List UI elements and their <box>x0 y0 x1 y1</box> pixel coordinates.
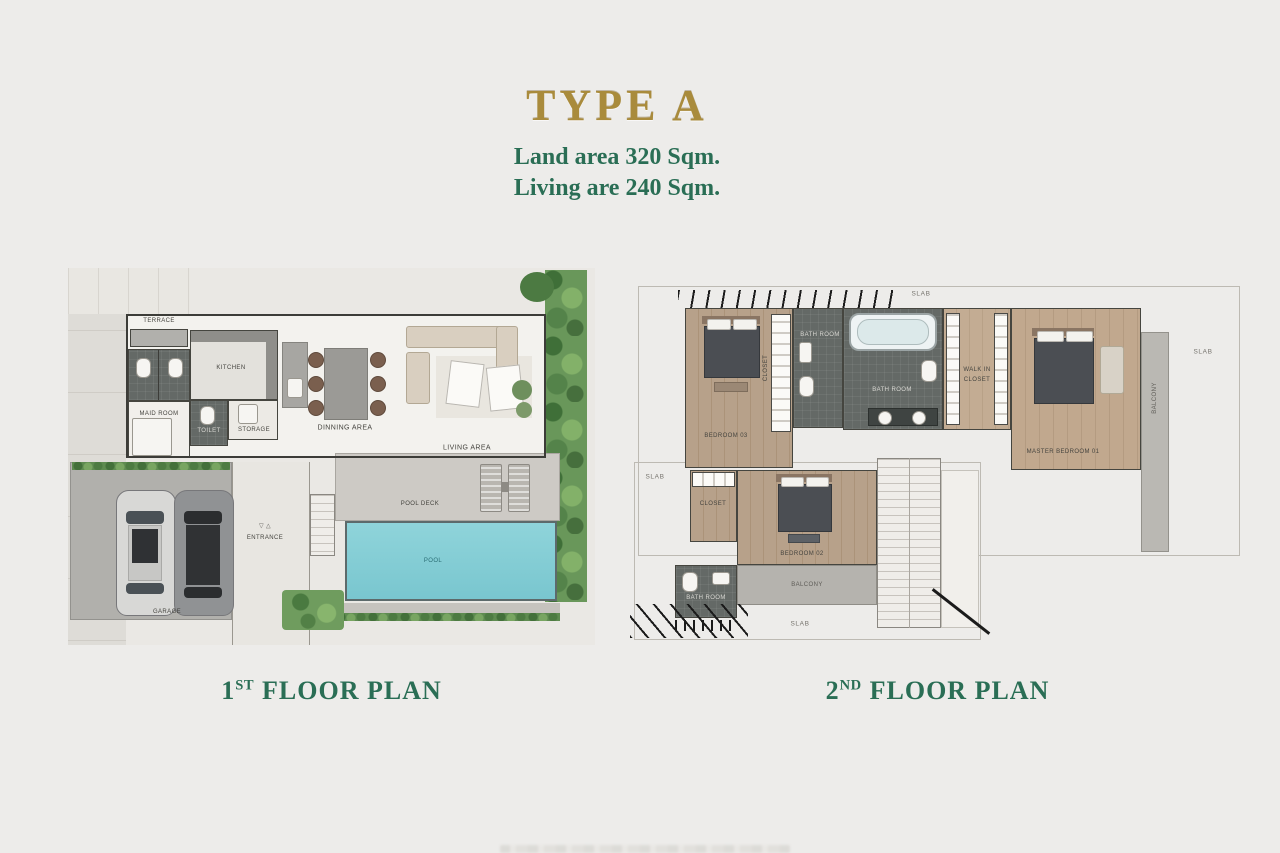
roof-hatch-marks <box>678 290 896 310</box>
dining-chair <box>370 400 386 416</box>
balcony-right <box>1141 332 1169 552</box>
garage-label: GARAGE <box>153 609 181 615</box>
floor1-caption-ordinal: ST <box>235 677 254 693</box>
bathtub-inner <box>857 319 929 345</box>
sofa <box>406 326 508 348</box>
plant <box>512 380 532 400</box>
floor1-caption-text: FLOOR PLAN <box>262 676 442 705</box>
entry-steps <box>310 494 335 556</box>
dining-area-label: DINNING AREA <box>318 425 373 432</box>
bath-divider-wall <box>158 350 159 400</box>
wall-right <box>544 314 546 458</box>
garden-patch <box>282 590 344 630</box>
pool-back-deck <box>335 603 560 613</box>
floor1-caption: 1STFLOOR PLAN <box>68 676 595 706</box>
pool-label: POOL <box>424 558 442 564</box>
car-sunroof <box>132 529 158 563</box>
bed-pillow <box>806 477 829 487</box>
floor2-caption-ordinal: ND <box>840 677 862 693</box>
car-windshield <box>184 511 222 524</box>
chaise <box>1100 346 1124 394</box>
car-gray-topview <box>174 490 234 616</box>
maid-room-label: MAID ROOM <box>140 411 179 417</box>
washer <box>238 404 258 424</box>
sink-fixture <box>712 572 730 585</box>
bed-pillow <box>707 319 731 330</box>
bed-bench <box>714 382 748 392</box>
bathroom-03 <box>793 308 843 428</box>
wardrobe-strip <box>692 472 735 487</box>
car-silver-topview <box>116 490 176 616</box>
side-table <box>502 482 508 492</box>
bed-pillow <box>781 477 804 487</box>
entrance-label: ENTRANCE <box>247 535 283 541</box>
kitchen-label: KITCHEN <box>216 365 245 371</box>
dining-chair <box>308 352 324 368</box>
dining-chair <box>308 400 324 416</box>
wardrobe-strip <box>946 313 960 425</box>
bed <box>704 326 760 378</box>
first-floor-plan: TERRACE MAID ROOM KITCHEN TOILET STORAGE <box>68 268 595 645</box>
plant <box>516 402 532 418</box>
walkin-label-line2: CLOSET <box>964 377 990 383</box>
slab-label-right: SLAB <box>1193 349 1212 356</box>
dining-table <box>324 348 368 420</box>
car-rear-glass <box>184 587 222 598</box>
entrance-arrows-icon: ▽ △ <box>259 523 271 530</box>
terrace-tile <box>130 329 188 347</box>
living-area-label: LIVING AREA <box>443 445 491 452</box>
front-walkway-tiles <box>68 268 190 314</box>
balcony-right-label: BALCONY <box>1152 382 1158 413</box>
toilet-fixture <box>921 360 937 382</box>
toilet-label: TOILET <box>197 428 220 434</box>
terrace-label: TERRACE <box>143 318 174 324</box>
bedroom02-label: BEDROOM 02 <box>780 551 823 557</box>
vanity-sink <box>912 411 926 425</box>
sink-fixture <box>799 342 812 363</box>
kitchen-island <box>282 342 308 408</box>
brochure-page: TYPE A Land area 320 Sqm. Living are 240… <box>0 0 1280 853</box>
pool-lounger <box>480 464 502 512</box>
walkin-label-line1: WALK IN <box>963 367 990 373</box>
toilet-fixture <box>799 376 814 397</box>
pool-lounger <box>508 464 530 512</box>
wall-left <box>126 314 128 458</box>
bed <box>1034 338 1094 404</box>
car-roof <box>186 525 220 585</box>
wall-bottom <box>126 456 546 458</box>
pool-hedge-row <box>335 613 560 621</box>
floor2-caption-number: 2 <box>826 676 840 705</box>
garage-hedge-row <box>72 462 230 470</box>
balcony-bottom-label: BALCONY <box>791 582 822 588</box>
closet02-label: CLOSET <box>700 501 726 507</box>
dining-chair <box>308 376 324 392</box>
second-floor-plan: SLAB SLAB SLAB SLAB BEDROOM 03 CLOSET BA… <box>630 280 1245 645</box>
land-area-text: Land area 320 Sqm. <box>0 144 1234 171</box>
tree-canopy <box>520 272 554 302</box>
bed-pillow <box>1066 331 1093 342</box>
slab-label-top: SLAB <box>911 291 930 298</box>
bed-pillow <box>733 319 757 330</box>
toilet-fixture <box>200 406 215 425</box>
master-bedroom-label: MASTER BEDROOM 01 <box>1027 449 1100 455</box>
upper-landing <box>941 470 979 628</box>
closet03-wardrobe <box>771 314 791 432</box>
cropped-text-artifact <box>500 845 790 853</box>
wall-top <box>126 314 546 316</box>
stair-stringer <box>909 458 910 628</box>
floor2-caption-text: FLOOR PLAN <box>870 676 1050 705</box>
storage-label: STORAGE <box>238 427 270 433</box>
car-rear-glass <box>126 583 164 594</box>
bed-bench <box>788 534 820 543</box>
pool-steps <box>349 525 383 557</box>
island-sink <box>287 378 303 398</box>
bathroom02-label: BATH ROOM <box>686 595 726 601</box>
toilet-fixture <box>168 358 183 378</box>
floor1-caption-number: 1 <box>221 676 235 705</box>
page-title: TYPE A <box>0 80 1234 131</box>
bathroom03-label: BATH ROOM <box>800 332 840 338</box>
wardrobe-strip <box>994 313 1008 425</box>
kitchen-counter <box>191 331 277 342</box>
kitchen-counter <box>266 331 277 399</box>
slab-label-left: SLAB <box>645 474 664 481</box>
floor2-caption: 2NDFLOOR PLAN <box>630 676 1245 706</box>
living-area-text: Living are 240 Sqm. <box>0 175 1234 202</box>
maid-bed <box>132 418 172 456</box>
closet03-label: CLOSET <box>763 355 769 381</box>
car-windshield <box>126 511 164 524</box>
daybed <box>445 360 484 408</box>
toilet-fixture <box>136 358 151 378</box>
toilet-fixture <box>682 572 698 592</box>
vanity-sink <box>878 411 892 425</box>
chaise-lounge <box>406 352 430 404</box>
dining-chair <box>370 376 386 392</box>
bed <box>778 484 832 532</box>
bedroom03-label: BEDROOM 03 <box>704 433 747 439</box>
master-bath-label: BATH ROOM <box>872 387 912 393</box>
dining-chair <box>370 352 386 368</box>
pool-deck-label: POOL DECK <box>401 501 439 507</box>
slab-label-bottom: SLAB <box>790 621 809 628</box>
bed-pillow <box>1037 331 1064 342</box>
section-tick-marks <box>675 620 737 631</box>
